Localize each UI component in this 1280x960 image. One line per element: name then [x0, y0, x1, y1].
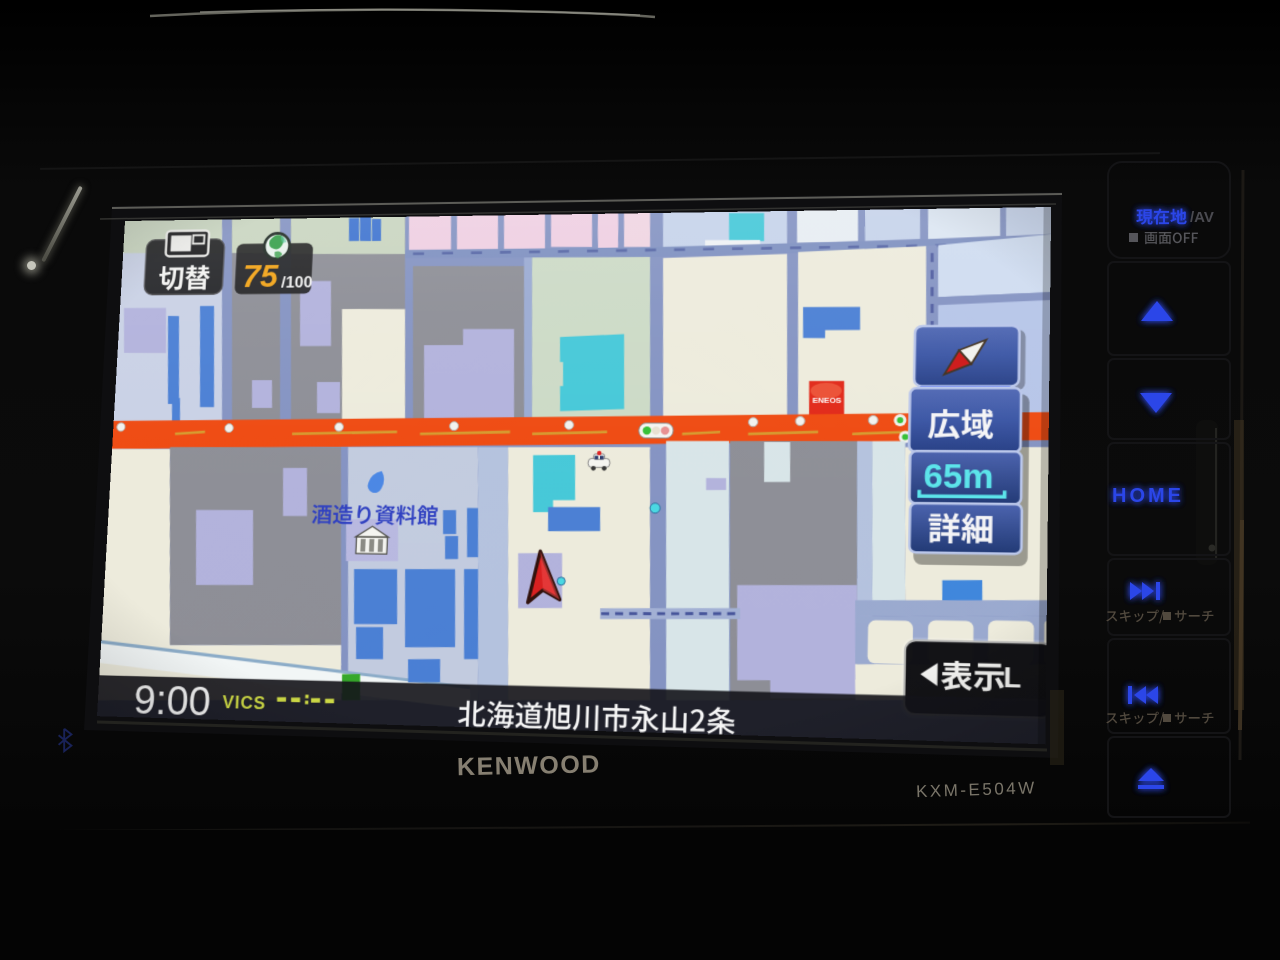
svg-text:HOME: HOME — [1112, 485, 1184, 507]
svg-text:/AV: /AV — [1190, 209, 1214, 226]
